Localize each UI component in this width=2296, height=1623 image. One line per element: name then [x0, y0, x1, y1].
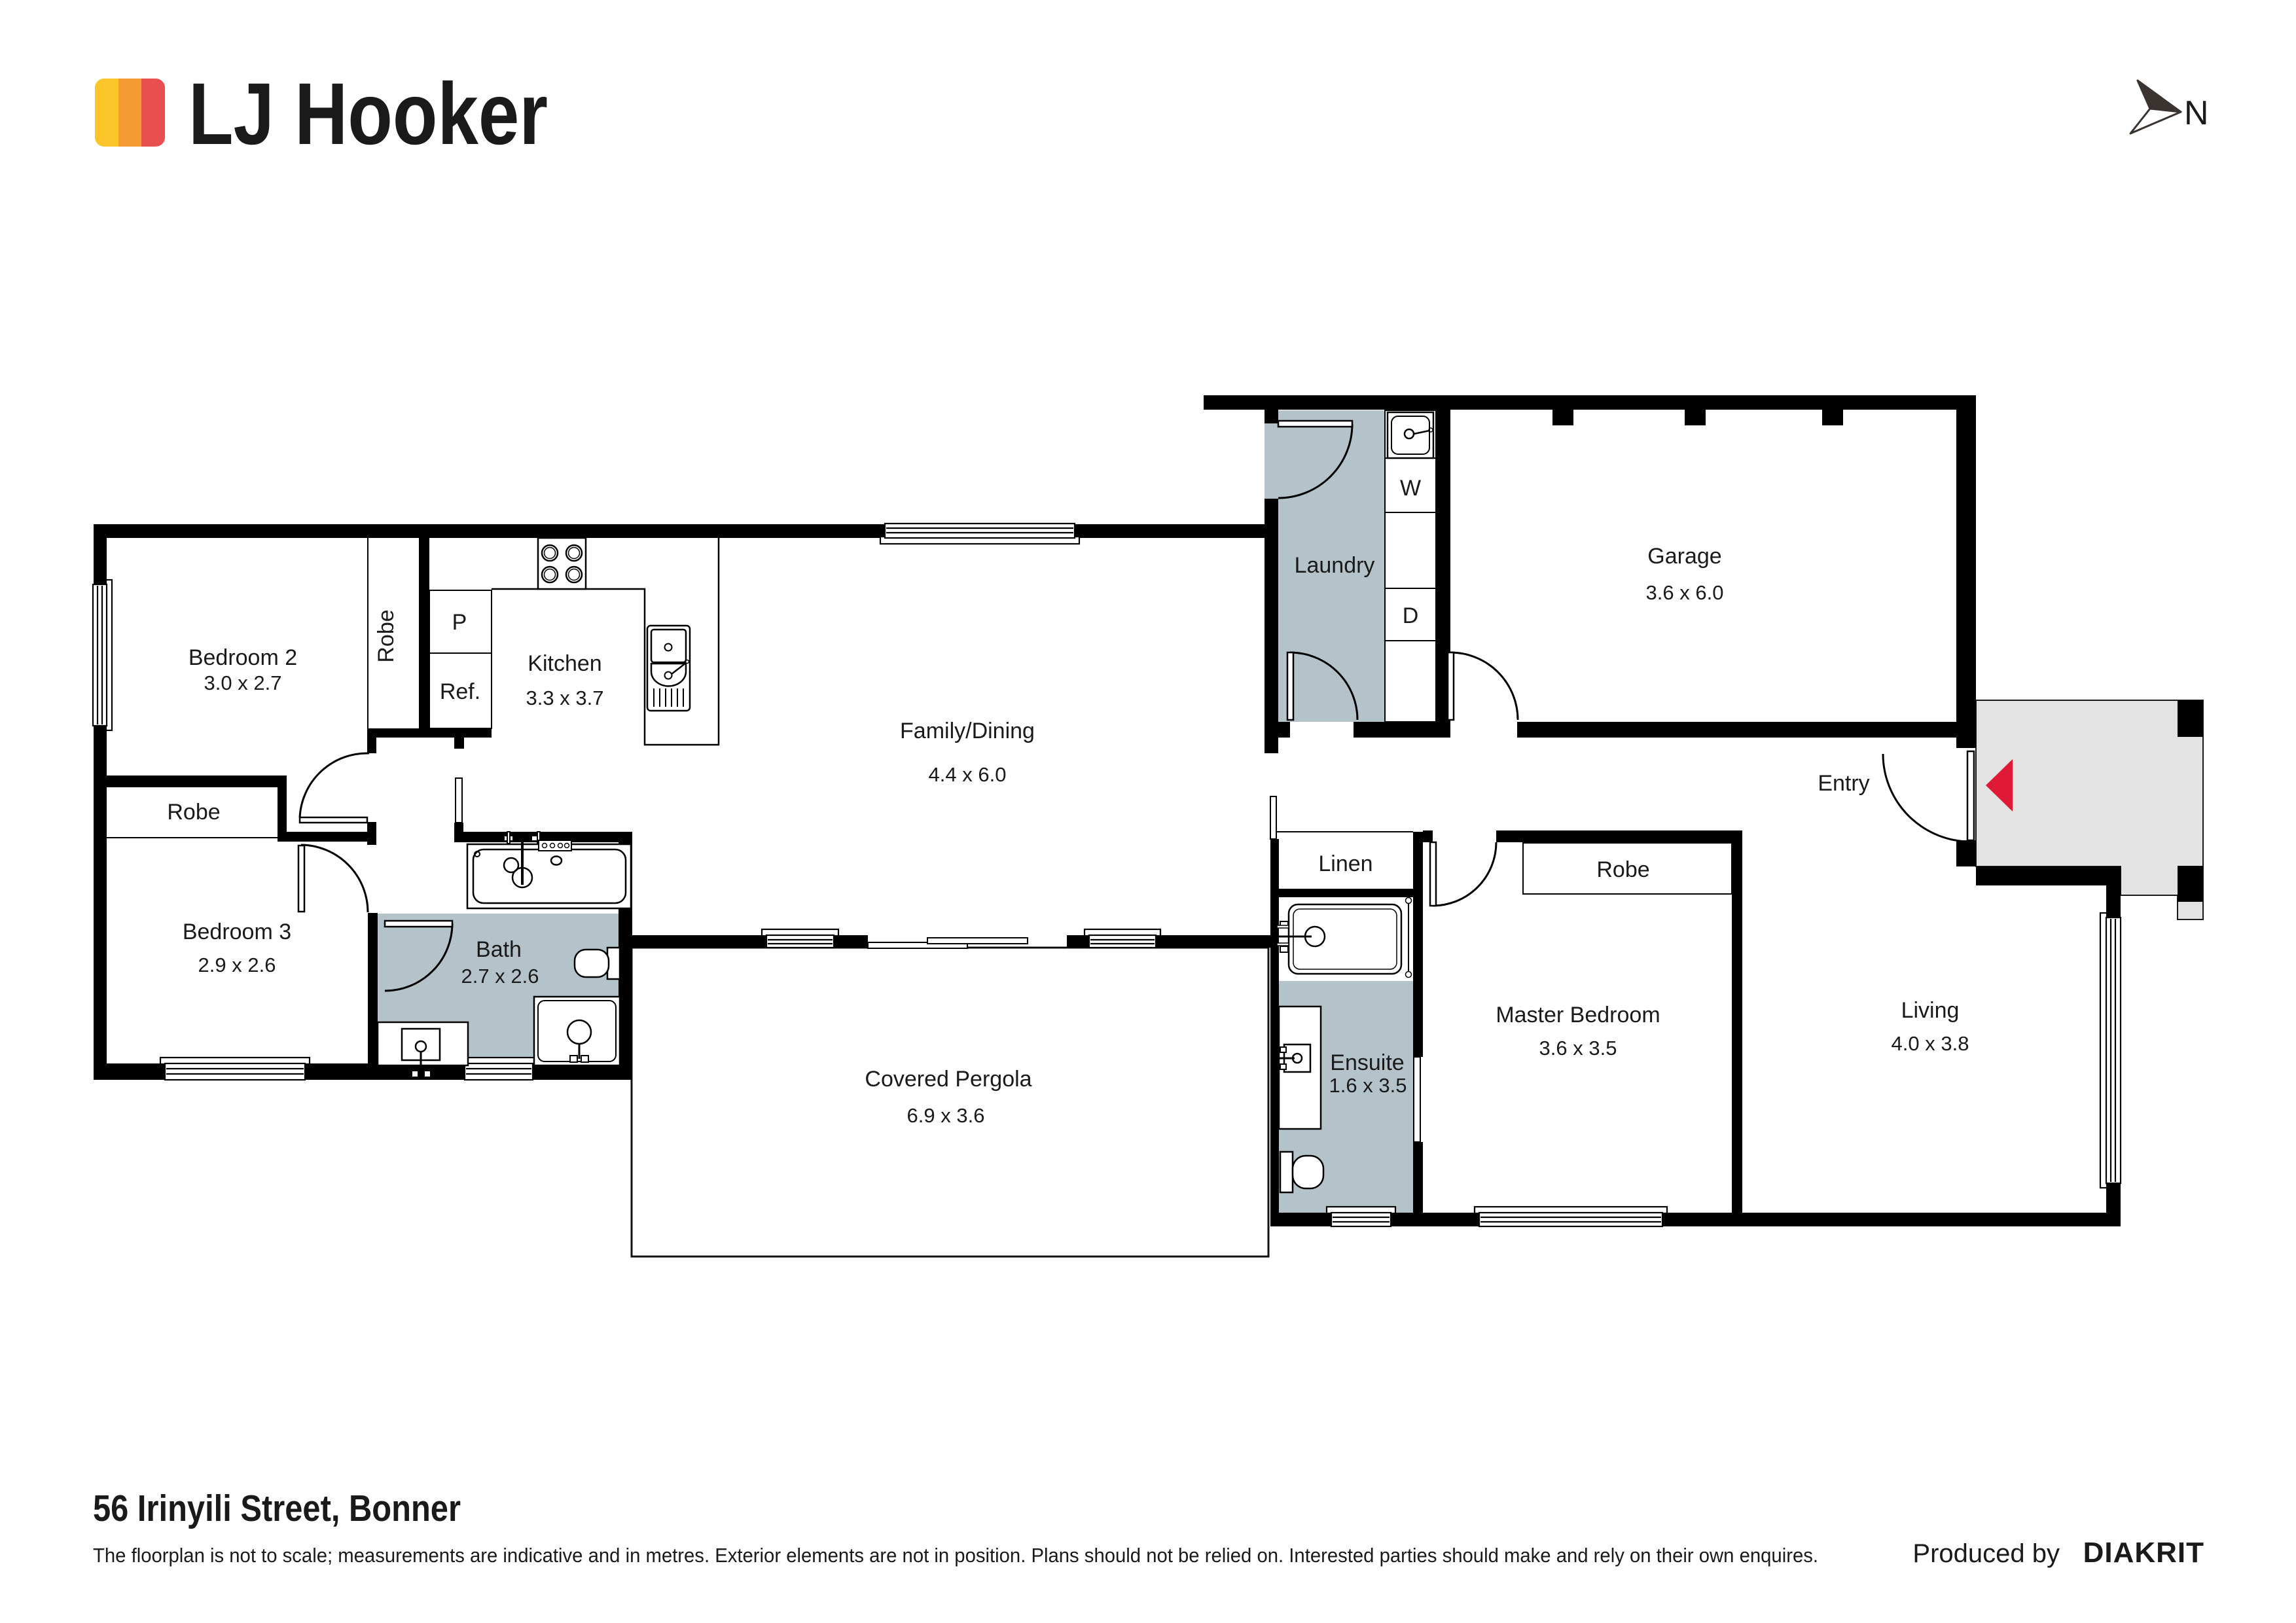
svg-text:Produced by: Produced by — [1912, 1539, 2060, 1568]
svg-text:Linen: Linen — [1318, 851, 1372, 876]
svg-text:LJ Hooker: LJ Hooker — [188, 65, 548, 163]
svg-text:Garage: Garage — [1647, 544, 1721, 569]
svg-text:2.9 x 2.6: 2.9 x 2.6 — [198, 954, 276, 976]
svg-text:Entry: Entry — [1818, 771, 1869, 796]
svg-text:Bedroom 3: Bedroom 3 — [183, 919, 291, 944]
svg-text:Family/Dining: Family/Dining — [900, 719, 1035, 743]
svg-text:The floorplan is not to scale;: The floorplan is not to scale; measureme… — [93, 1544, 1818, 1567]
svg-text:Robe: Robe — [1596, 857, 1649, 882]
svg-text:4.4 x 6.0: 4.4 x 6.0 — [929, 763, 1007, 786]
svg-text:D: D — [1403, 603, 1419, 628]
svg-text:4.0 x 3.8: 4.0 x 3.8 — [1892, 1032, 1969, 1055]
svg-text:6.9 x 3.6: 6.9 x 3.6 — [907, 1104, 985, 1127]
svg-text:Covered Pergola: Covered Pergola — [865, 1067, 1031, 1092]
svg-text:3.0 x 2.7: 3.0 x 2.7 — [204, 671, 282, 694]
svg-text:DIAKRIT: DIAKRIT — [2083, 1537, 2204, 1569]
svg-text:56 Irinyili Street, Bonner: 56 Irinyili Street, Bonner — [93, 1488, 461, 1529]
svg-text:Robe: Robe — [167, 800, 220, 825]
svg-text:Master Bedroom: Master Bedroom — [1496, 1003, 1660, 1027]
svg-text:Ensuite: Ensuite — [1330, 1050, 1404, 1075]
svg-text:Kitchen: Kitchen — [528, 651, 601, 676]
svg-text:1.6 x 3.5: 1.6 x 3.5 — [1329, 1074, 1407, 1097]
svg-text:Laundry: Laundry — [1295, 553, 1375, 578]
svg-text:Ref.: Ref. — [440, 679, 480, 704]
svg-text:W: W — [1400, 476, 1421, 501]
svg-text:3.3 x 3.7: 3.3 x 3.7 — [526, 687, 604, 709]
svg-text:Living: Living — [1901, 998, 1960, 1023]
svg-text:3.6 x 3.5: 3.6 x 3.5 — [1539, 1037, 1617, 1060]
svg-text:Robe: Robe — [374, 609, 399, 662]
svg-text:2.7 x 2.6: 2.7 x 2.6 — [461, 965, 539, 988]
svg-text:Bedroom 2: Bedroom 2 — [188, 645, 297, 670]
svg-text:Bath: Bath — [476, 937, 522, 962]
svg-text:3.6 x 6.0: 3.6 x 6.0 — [1646, 581, 1724, 604]
svg-text:P: P — [452, 610, 467, 635]
svg-text:N: N — [2184, 94, 2209, 132]
